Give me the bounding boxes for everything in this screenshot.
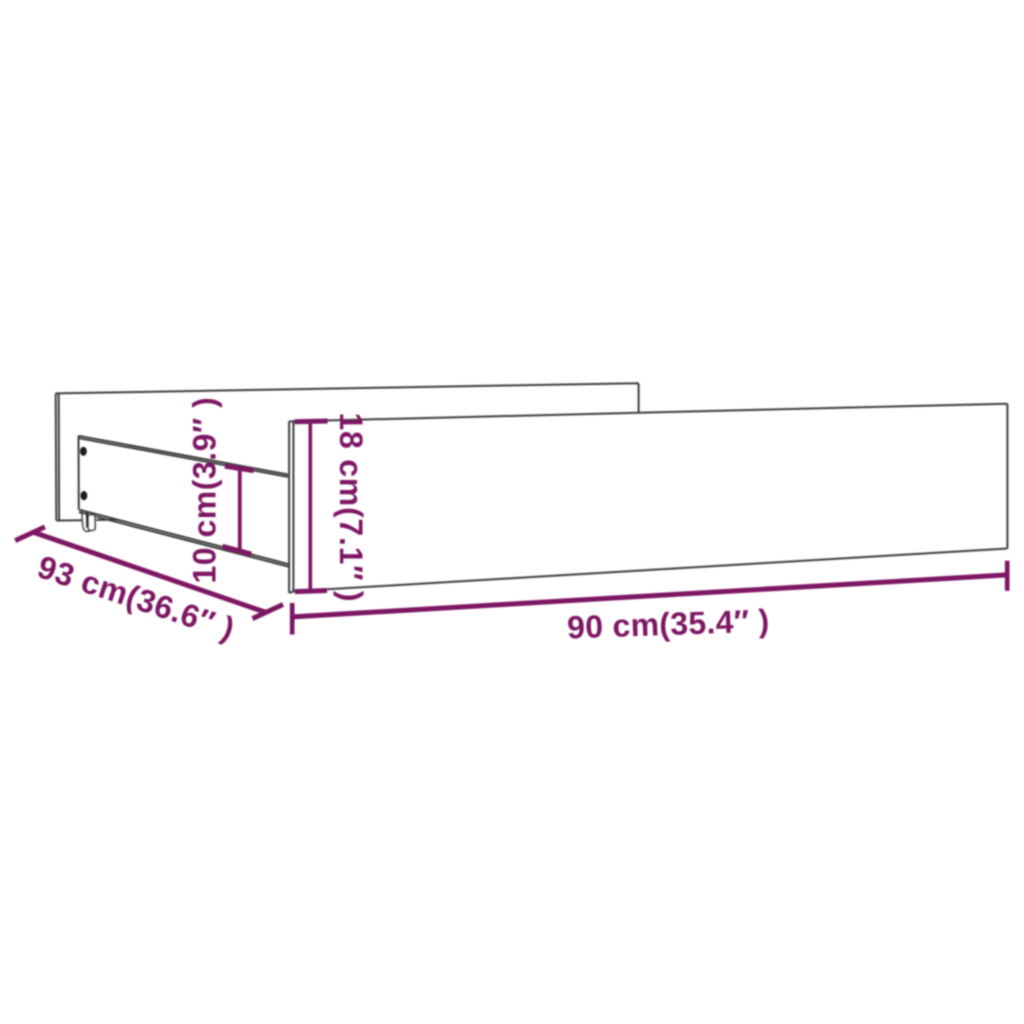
svg-text:90 cm(35.4″ ): 90 cm(35.4″ ) [566, 602, 770, 645]
svg-text:18 cm(7.1″ ): 18 cm(7.1″ ) [333, 413, 369, 603]
svg-text:10 cm(3.9″ ): 10 cm(3.9″ ) [187, 397, 223, 584]
